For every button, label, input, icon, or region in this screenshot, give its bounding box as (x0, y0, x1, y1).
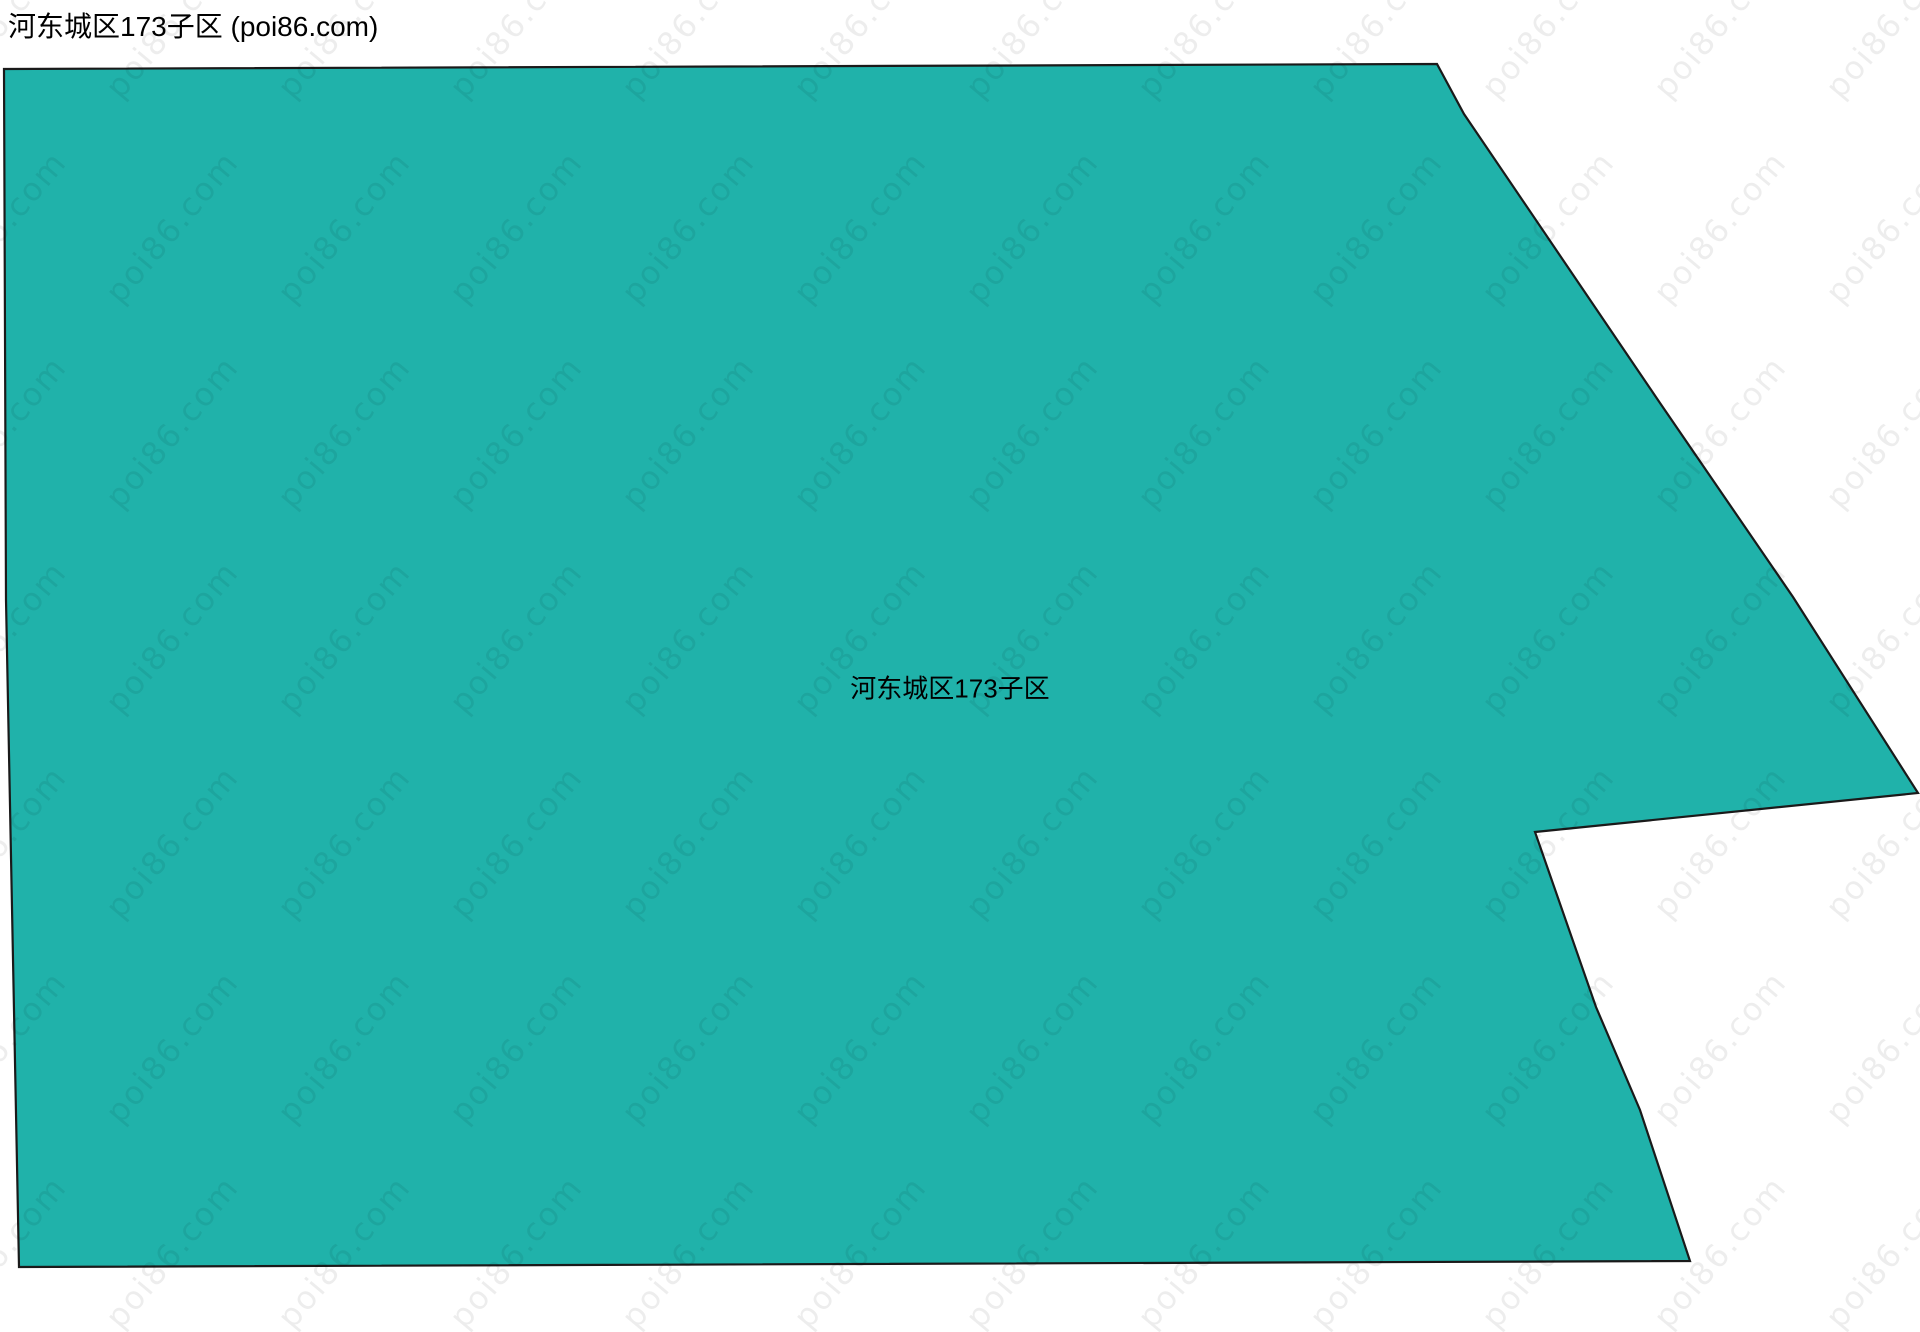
region-polygon-svg (0, 0, 1920, 1332)
page-title: 河东城区173子区 (poi86.com) (8, 10, 378, 44)
map-canvas: poi86.compoi86.compoi86.compoi86.compoi8… (0, 0, 1920, 1332)
region-polygon[interactable] (4, 64, 1918, 1267)
region-label: 河东城区173子区 (850, 669, 1049, 706)
